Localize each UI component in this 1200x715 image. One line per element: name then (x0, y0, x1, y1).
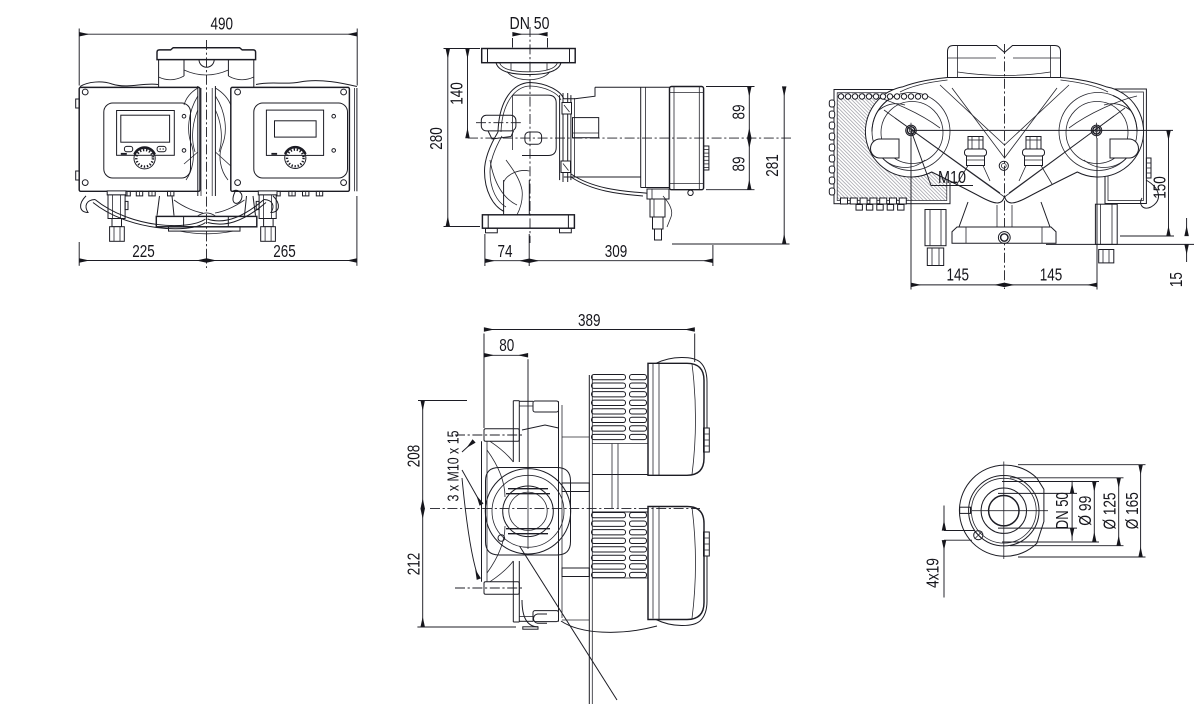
svg-text:4x19: 4x19 (923, 558, 943, 588)
svg-text:212: 212 (403, 553, 423, 576)
svg-text:89: 89 (729, 105, 749, 120)
svg-text:309: 309 (605, 241, 628, 261)
svg-text:490: 490 (211, 14, 234, 34)
svg-text:225: 225 (132, 241, 155, 261)
svg-text:3 x M10 x 15: 3 x M10 x 15 (446, 430, 463, 501)
svg-text:145: 145 (1040, 265, 1063, 285)
svg-text:M10: M10 (938, 167, 966, 187)
svg-text:74: 74 (498, 241, 513, 261)
svg-text:80: 80 (499, 335, 514, 355)
svg-text:89: 89 (729, 157, 749, 172)
svg-text:281: 281 (762, 154, 782, 177)
svg-text:Ø 125: Ø 125 (1100, 493, 1120, 530)
svg-text:Ø 99: Ø 99 (1075, 496, 1095, 526)
svg-text:DN 50: DN 50 (1052, 492, 1072, 529)
svg-text:265: 265 (273, 241, 296, 261)
svg-text:Ø 165: Ø 165 (1122, 492, 1142, 529)
svg-text:280: 280 (426, 127, 446, 150)
svg-text:140: 140 (447, 82, 467, 105)
svg-text:150: 150 (1150, 176, 1170, 199)
svg-text:15: 15 (1166, 272, 1186, 287)
svg-text:389: 389 (578, 310, 601, 330)
svg-text:145: 145 (946, 265, 969, 285)
svg-text:208: 208 (403, 445, 423, 468)
